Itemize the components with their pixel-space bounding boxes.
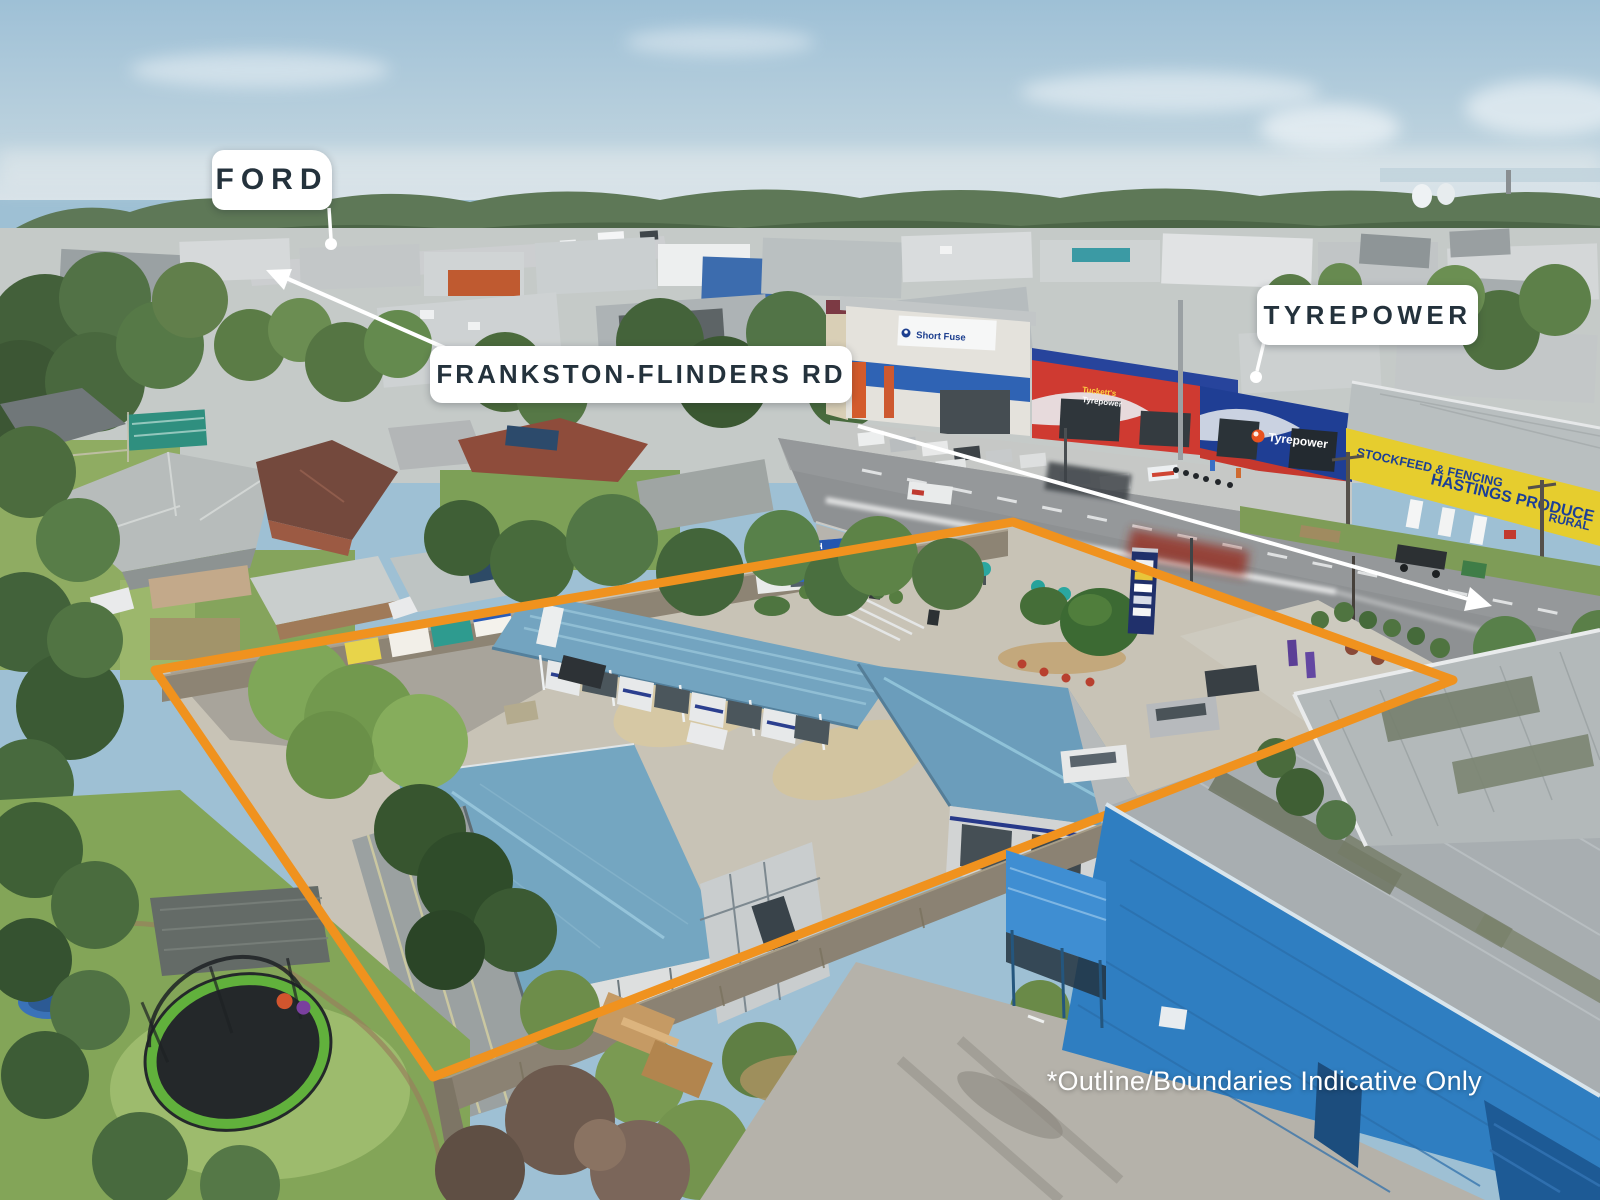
tyrepower-leader-dot bbox=[1250, 371, 1262, 383]
road-callout-text: FRANKSTON-FLINDERS RD bbox=[436, 359, 845, 390]
ford-callout-text: FORD bbox=[216, 163, 329, 197]
ford-leader-line bbox=[329, 208, 331, 239]
aerial-property-photo: Short Fuse Tuckett's Tyrepower Tyrepower… bbox=[0, 0, 1600, 1200]
tyrepower-callout-label: TYREPOWER bbox=[1257, 285, 1478, 345]
ford-leader-dot bbox=[325, 238, 337, 250]
short-fuse-building: Short Fuse bbox=[840, 296, 1036, 436]
ford-callout-label: FORD bbox=[212, 150, 332, 210]
boundary-disclaimer-text: *Outline/Boundaries Indicative Only bbox=[1020, 1066, 1482, 1097]
road-callout-label: FRANKSTON-FLINDERS RD bbox=[430, 346, 852, 403]
tyrepower-callout-text: TYREPOWER bbox=[1263, 300, 1471, 331]
